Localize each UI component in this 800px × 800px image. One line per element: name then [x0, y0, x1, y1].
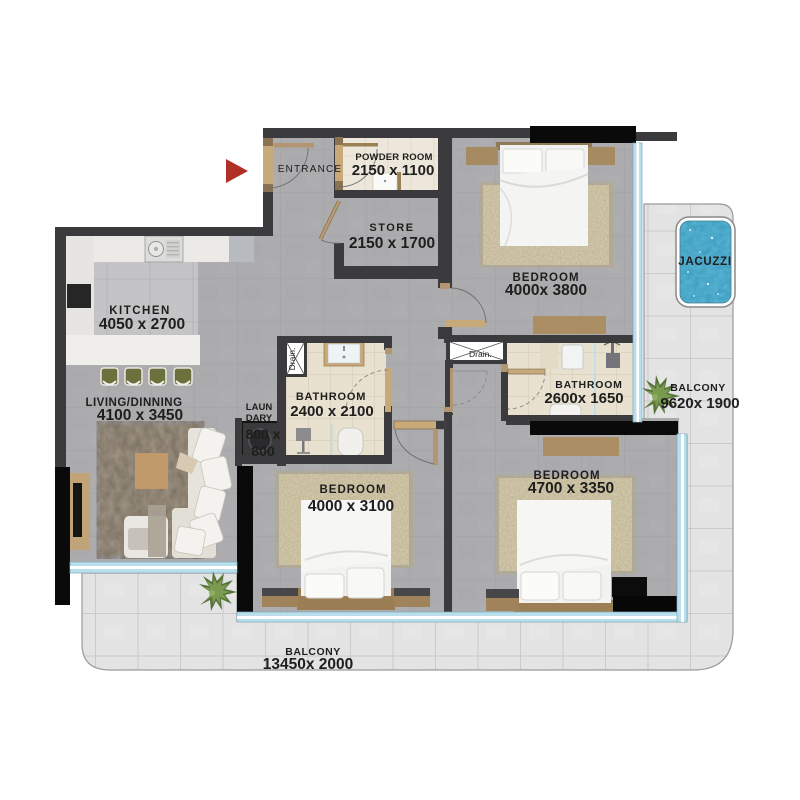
svg-text:DARY: DARY — [246, 413, 273, 424]
svg-text:9620x 1900: 9620x 1900 — [660, 395, 739, 412]
svg-text:LAUN: LAUN — [246, 402, 273, 413]
svg-text:BATHROOM: BATHROOM — [296, 391, 366, 403]
svg-text:800: 800 — [251, 443, 275, 459]
svg-text:4000x 3800: 4000x 3800 — [505, 282, 587, 299]
svg-text:800 x: 800 x — [245, 426, 280, 442]
svg-text:2150 x 1100: 2150 x 1100 — [352, 162, 435, 179]
svg-text:4700 x 3350: 4700 x 3350 — [528, 480, 614, 497]
svg-text:2600x 1650: 2600x 1650 — [544, 390, 623, 407]
svg-text:Drain.: Drain. — [287, 348, 297, 371]
svg-text:4000 x 3100: 4000 x 3100 — [308, 498, 394, 515]
svg-text:2400 x 2100: 2400 x 2100 — [290, 403, 373, 420]
svg-text:Drain.: Drain. — [469, 349, 492, 359]
svg-text:ENTRANCE: ENTRANCE — [278, 164, 343, 175]
svg-text:4100 x 3450: 4100 x 3450 — [97, 407, 183, 424]
svg-text:4050 x 2700: 4050 x 2700 — [99, 316, 185, 333]
svg-text:BEDROOM: BEDROOM — [319, 484, 386, 496]
svg-text:2150 x 1700: 2150 x 1700 — [349, 235, 435, 252]
svg-text:STORE: STORE — [369, 222, 414, 234]
svg-text:BALCONY: BALCONY — [670, 382, 725, 394]
svg-text:13450x 2000: 13450x 2000 — [263, 656, 354, 673]
svg-text:JACUZZI: JACUZZI — [678, 256, 731, 268]
